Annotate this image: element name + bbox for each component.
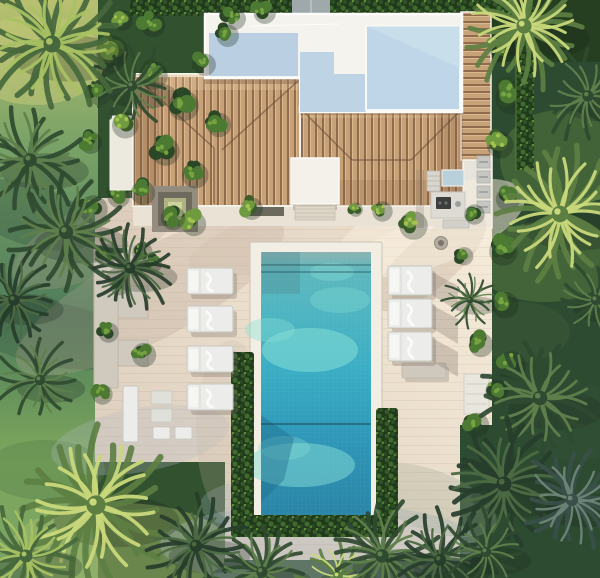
- aerial-villa-image: [0, 0, 600, 578]
- sun-loungers-right: [388, 266, 458, 377]
- aerial-villa-photo: [0, 0, 600, 578]
- swimming-pool: [245, 242, 382, 529]
